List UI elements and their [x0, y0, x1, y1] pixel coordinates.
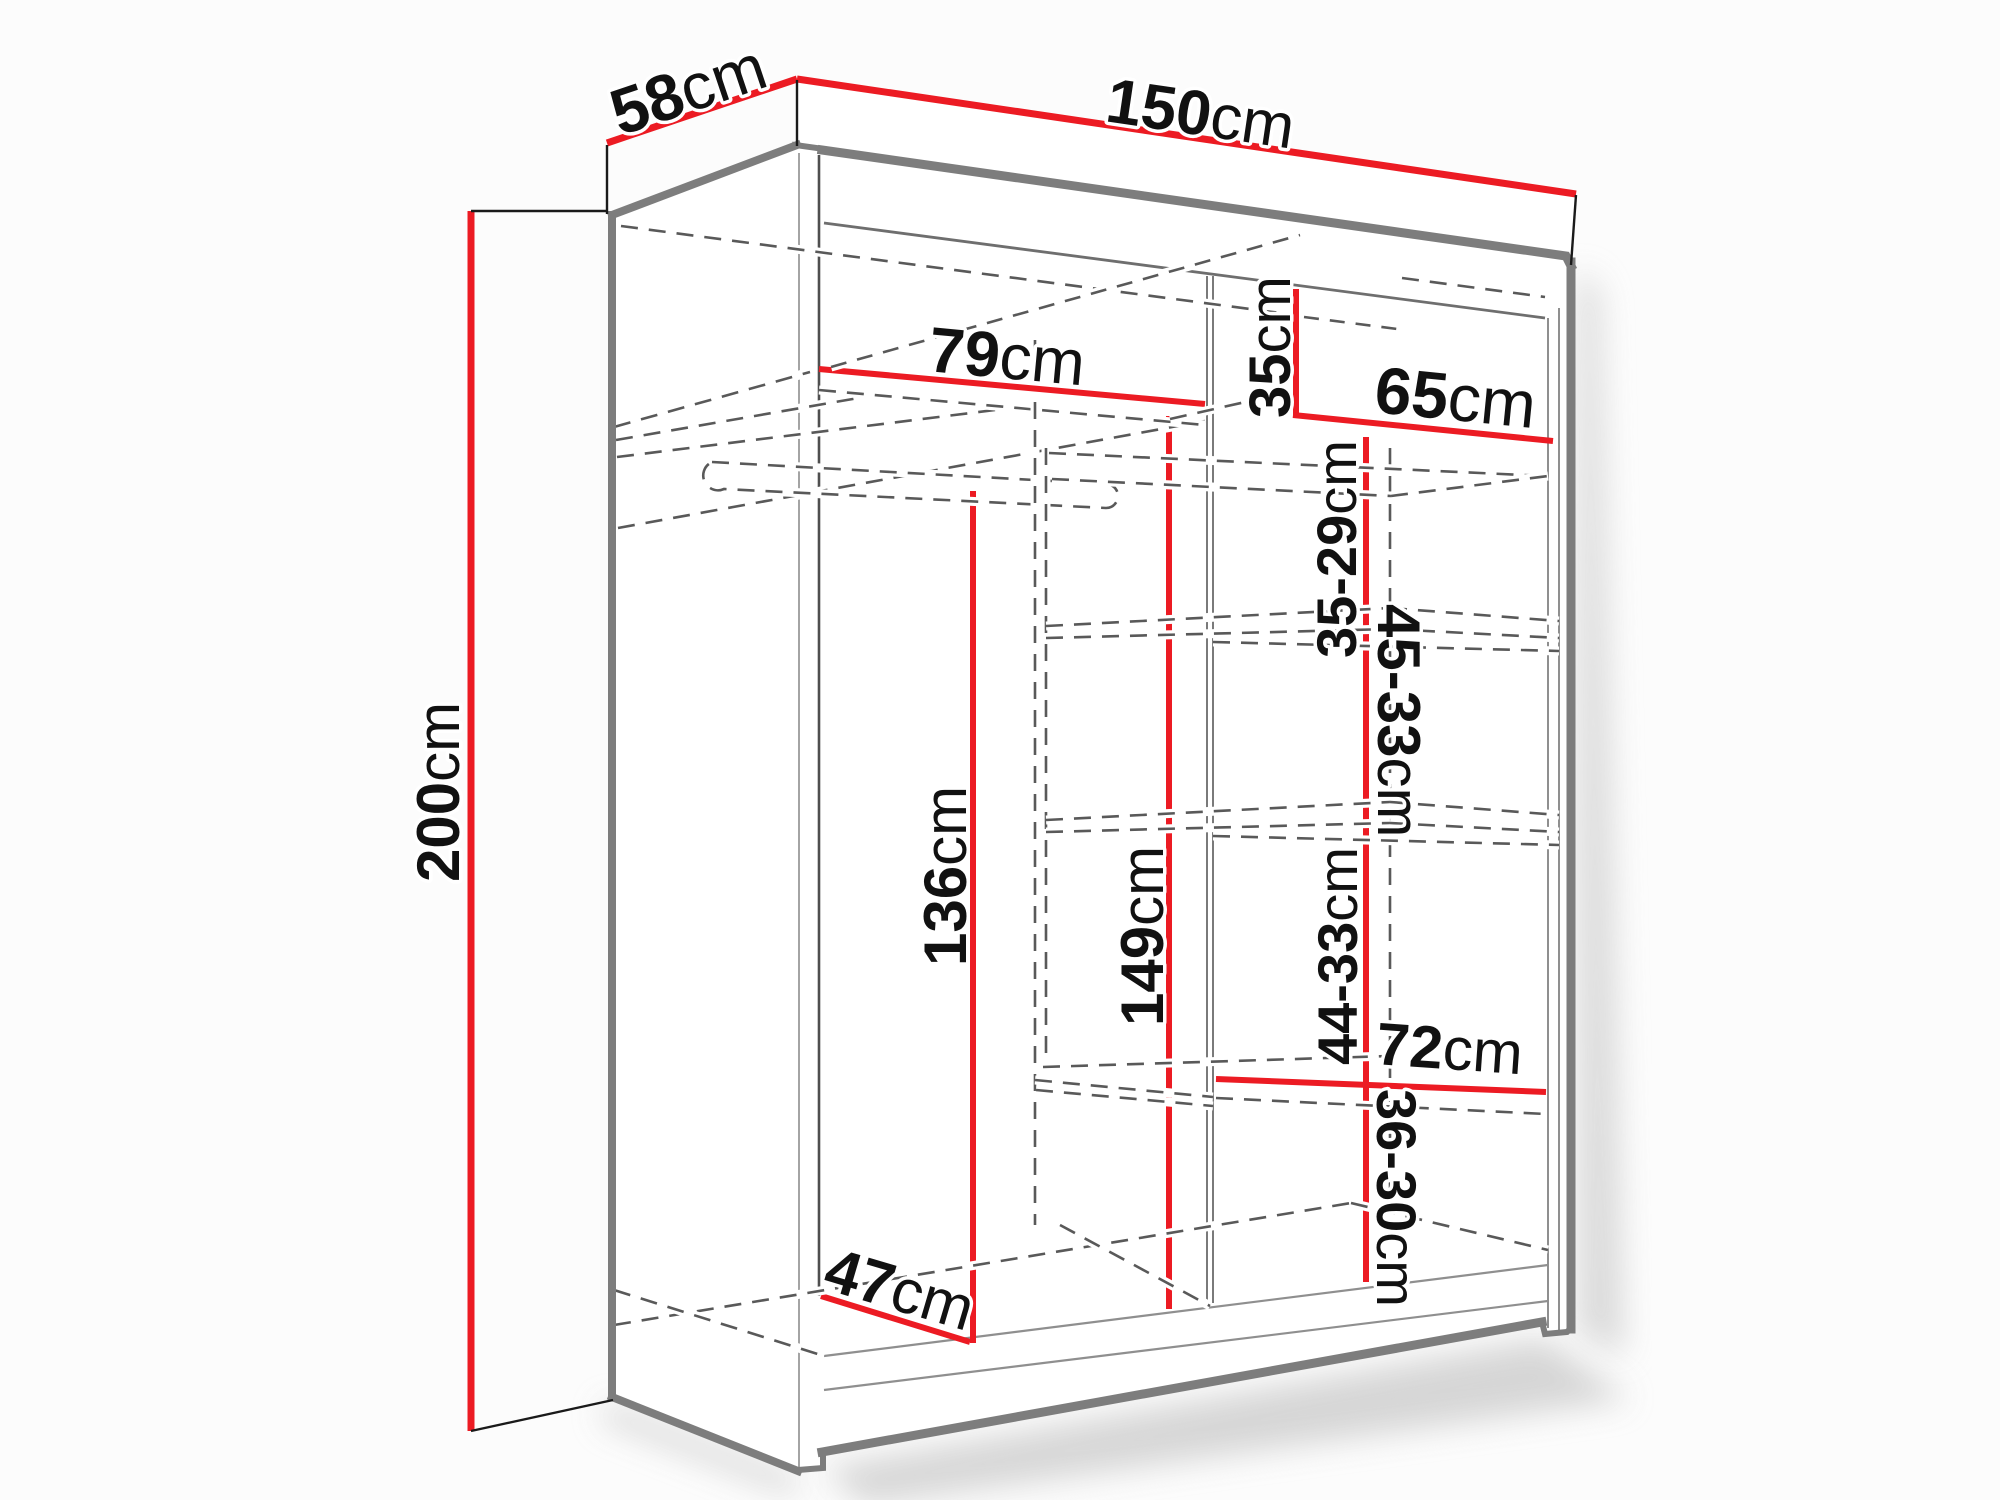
svg-text:136cm: 136cm [912, 786, 979, 966]
svg-text:44-33cm: 44-33cm [1306, 847, 1369, 1065]
svg-text:45-33cm: 45-33cm [1365, 604, 1432, 837]
svg-text:79cm: 79cm [926, 313, 1088, 399]
svg-text:36-30cm: 36-30cm [1365, 1089, 1428, 1307]
svg-text:72cm: 72cm [1374, 1010, 1525, 1087]
svg-text:149cm: 149cm [1109, 846, 1176, 1026]
svg-text:35cm: 35cm [1238, 276, 1303, 418]
svg-text:200cm: 200cm [405, 702, 472, 882]
svg-text:35-29cm: 35-29cm [1305, 440, 1368, 658]
